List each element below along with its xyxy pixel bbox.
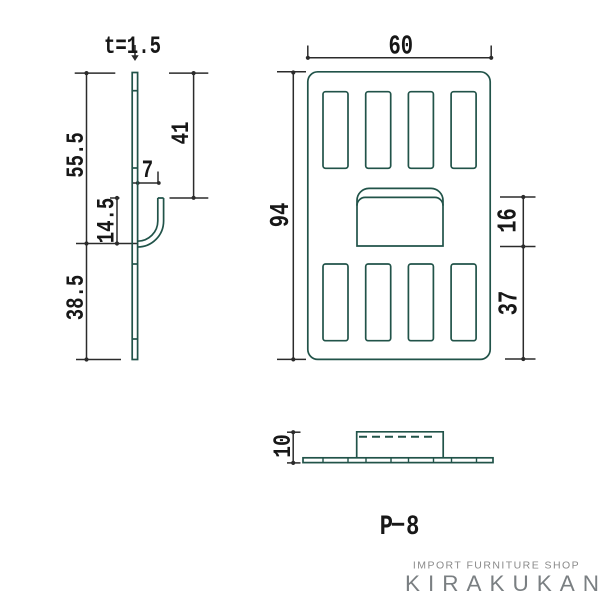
svg-text:37: 37 (495, 291, 525, 316)
svg-text:P 8: P 8 (380, 512, 420, 543)
svg-text:16: 16 (494, 208, 524, 233)
svg-text:94: 94 (267, 203, 297, 228)
svg-text:7: 7 (142, 157, 153, 185)
svg-text:14.5: 14.5 (93, 198, 121, 244)
svg-text:38.5: 38.5 (63, 275, 91, 321)
svg-text:KIRAKUKAN: KIRAKUKAN (405, 571, 600, 596)
svg-text:10: 10 (269, 434, 298, 457)
svg-text:41: 41 (168, 122, 196, 145)
svg-text:60: 60 (388, 32, 413, 62)
svg-text:55.5: 55.5 (63, 132, 91, 178)
svg-text:IMPORT FURNITURE SHOP: IMPORT FURNITURE SHOP (413, 560, 580, 572)
svg-text:t=1.5: t=1.5 (104, 33, 161, 61)
